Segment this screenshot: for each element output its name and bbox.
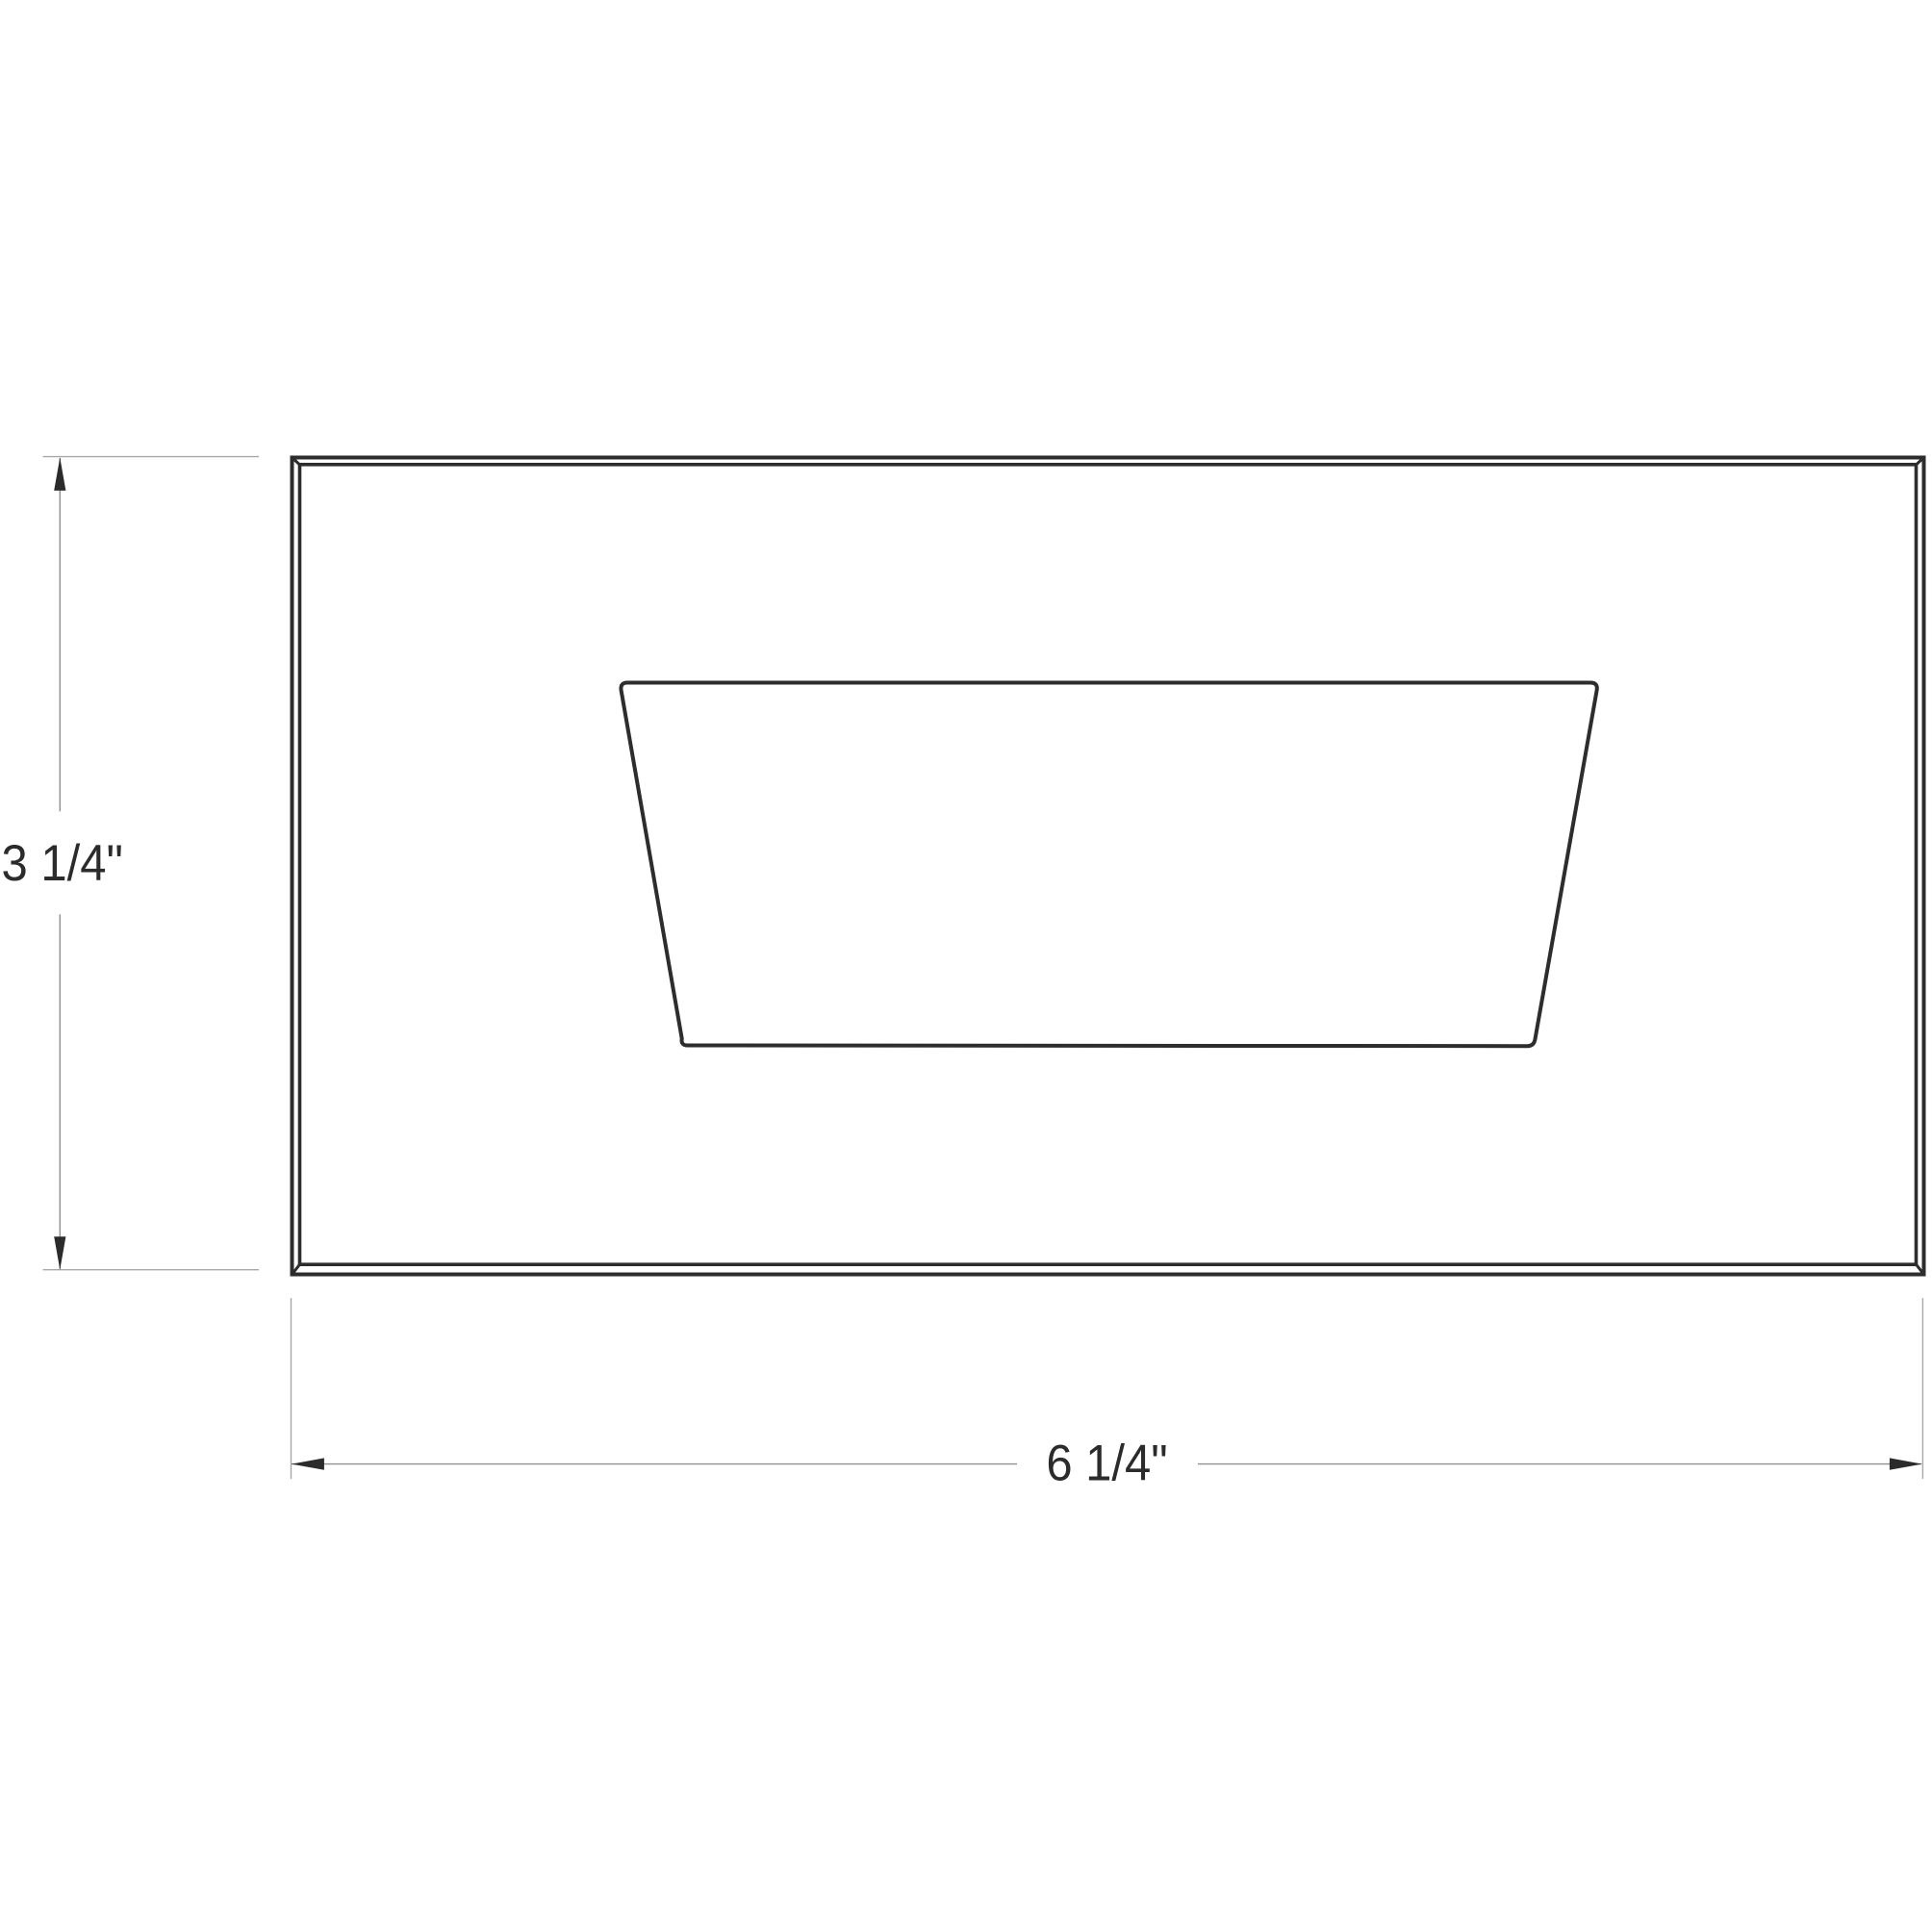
svg-text:6 1/4": 6 1/4" bbox=[1046, 1435, 1167, 1491]
svg-text:3 1/4": 3 1/4" bbox=[2, 834, 123, 891]
